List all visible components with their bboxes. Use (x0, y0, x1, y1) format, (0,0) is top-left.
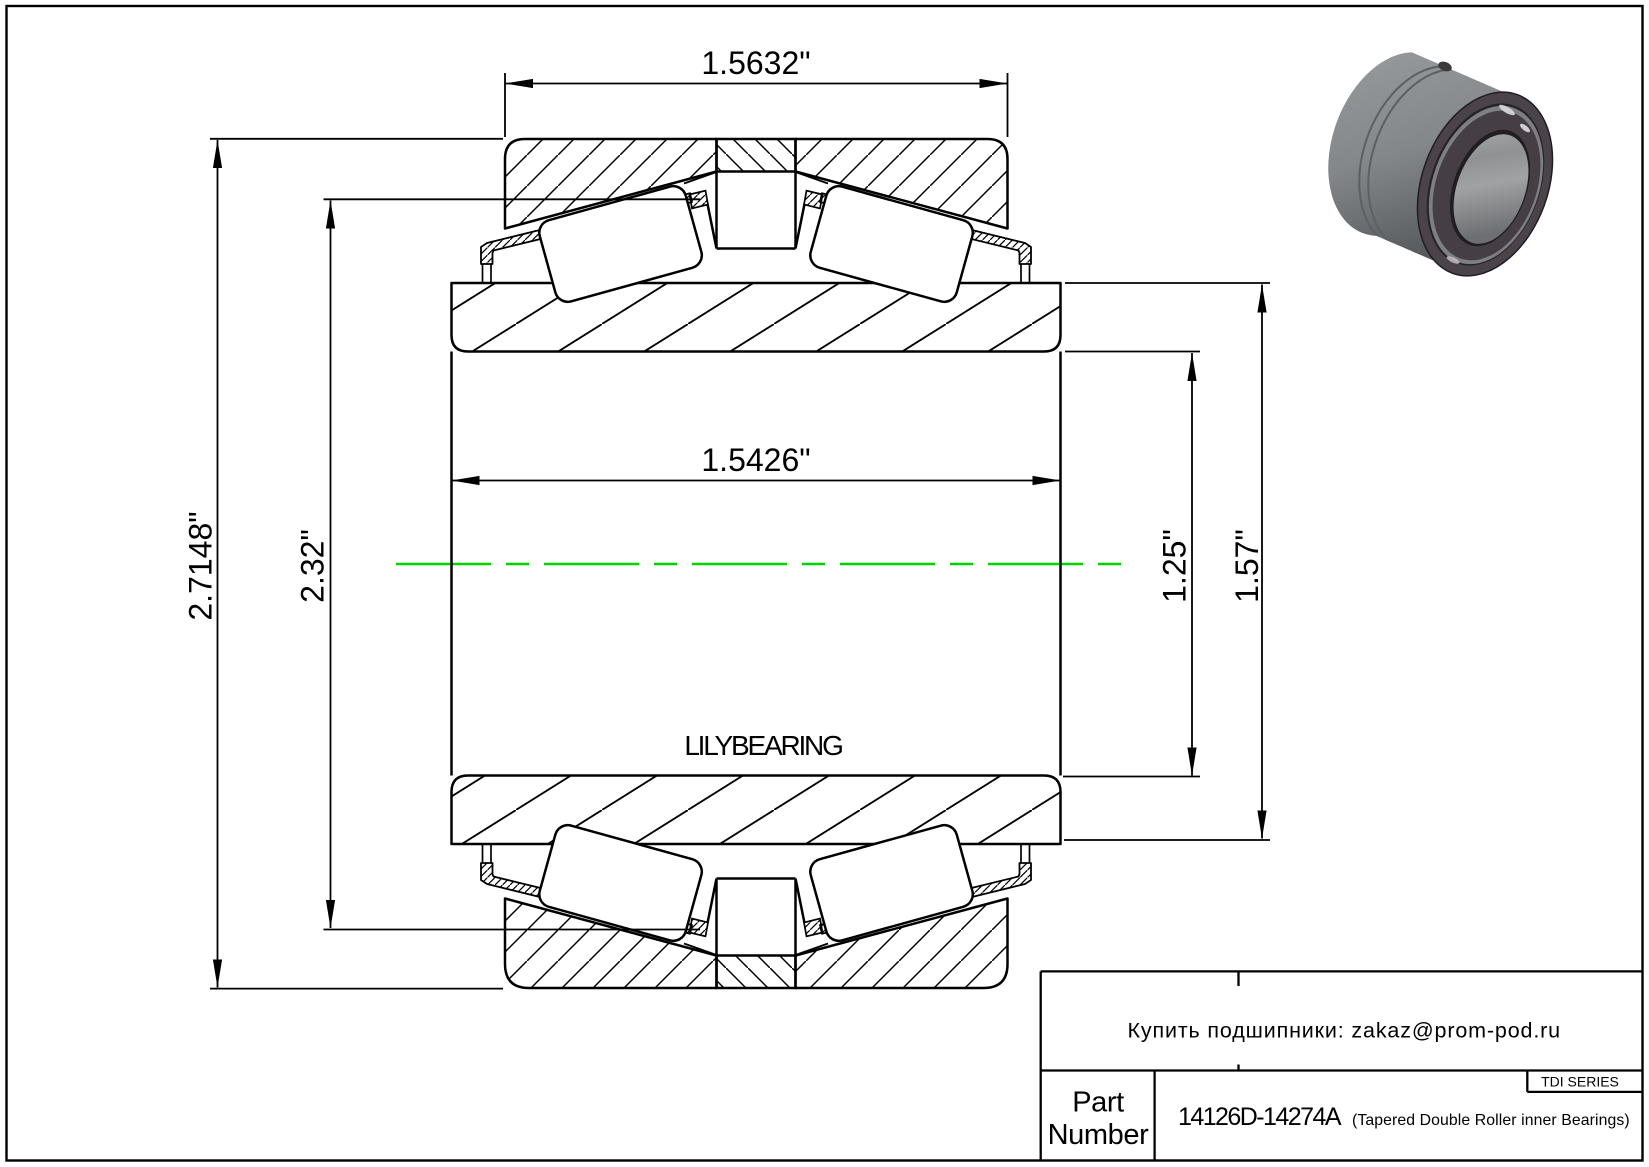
svg-text:LILYBEARING: LILYBEARING (684, 730, 842, 761)
svg-text:2.32": 2.32" (295, 529, 331, 603)
svg-text:(Tapered Double Roller inner B: (Tapered Double Roller inner Bearings) (1352, 1112, 1630, 1129)
svg-text:Part: Part (1072, 1087, 1124, 1119)
svg-text:14126D-14274A: 14126D-14274A (1178, 1103, 1342, 1131)
svg-text:Купить подшипники: zakaz@prom-: Купить подшипники: zakaz@prom-pod.ru (1128, 1019, 1561, 1043)
svg-text:1.57": 1.57" (1229, 529, 1265, 603)
svg-text:1.25": 1.25" (1157, 529, 1193, 603)
svg-text:Number: Number (1048, 1119, 1149, 1151)
svg-text:1.5426": 1.5426" (701, 442, 810, 478)
svg-text:1.5632": 1.5632" (701, 45, 810, 81)
svg-text:TDI SERIES: TDI SERIES (1541, 1074, 1619, 1090)
svg-text:2.7148": 2.7148" (183, 511, 219, 620)
